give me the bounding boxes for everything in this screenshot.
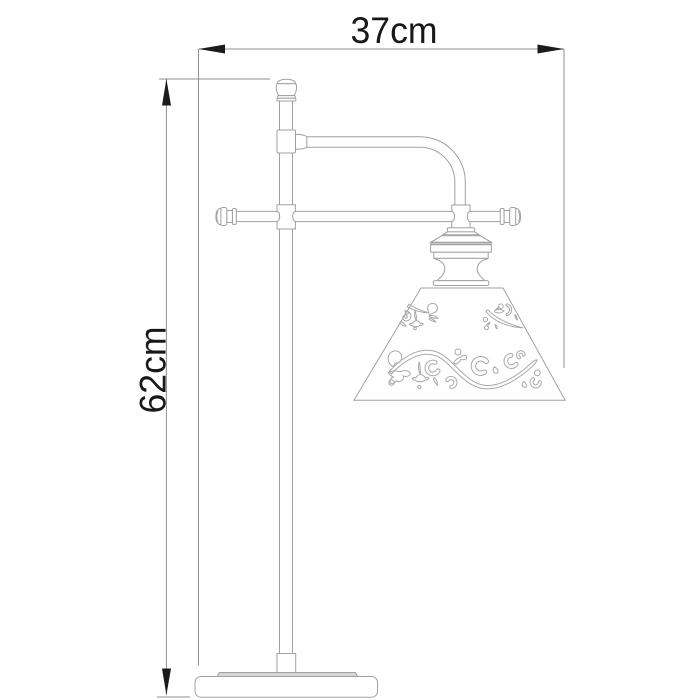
svg-text:62cm: 62cm <box>132 327 174 414</box>
svg-text:37cm: 37cm <box>351 9 438 51</box>
